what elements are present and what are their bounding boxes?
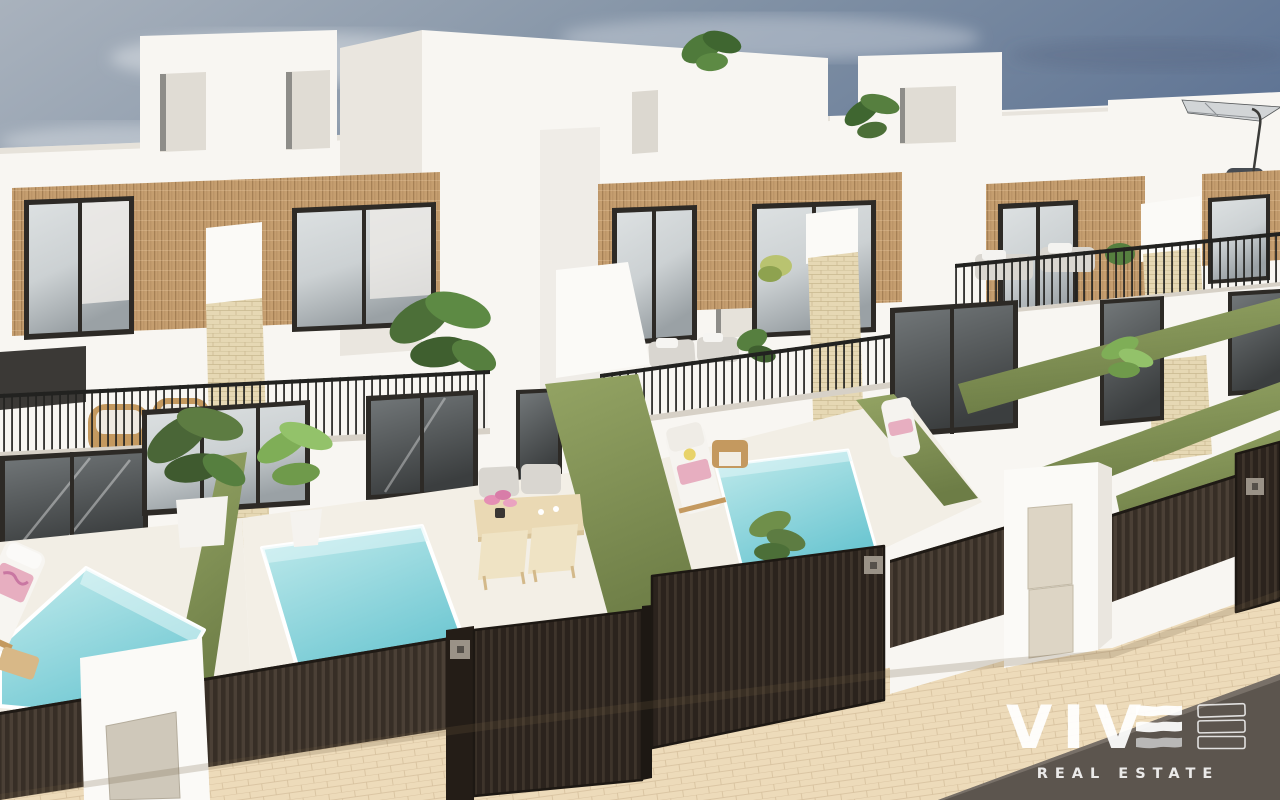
pillar-white-cap (206, 222, 262, 311)
roof-door-recess (632, 90, 658, 154)
sofa-pillow (656, 338, 678, 348)
roof-door-recess (286, 70, 330, 150)
gate-emblem (1246, 478, 1264, 495)
pillar-side (1098, 462, 1112, 650)
brand-e-glyph-icon (1136, 706, 1182, 749)
villa-render: VIV REAL ESTATE (0, 0, 1280, 800)
white-planter (290, 509, 322, 547)
table-opening (719, 452, 741, 466)
pedestrian-gate (1236, 442, 1280, 612)
window-curtain (370, 207, 431, 299)
mailbox-panel (1028, 504, 1072, 589)
roof-door-recess (900, 86, 956, 144)
door-mullion (420, 393, 424, 496)
mailbox-pillar (1004, 462, 1112, 668)
brand-tagline: REAL ESTATE (1037, 766, 1220, 782)
mailbox-panel (1029, 585, 1073, 658)
gate-emblem (450, 640, 470, 659)
window-mullion (78, 202, 82, 334)
door-reveal-shadow (286, 72, 292, 149)
white-planter (176, 496, 228, 548)
table-cup (538, 509, 544, 515)
yellow-shrub (758, 266, 782, 282)
door-mullion (70, 452, 74, 548)
sofa-pillow (1048, 243, 1072, 253)
dining-chair-wood (528, 524, 578, 574)
meter-panel (106, 712, 180, 800)
door-reveal-shadow (160, 74, 166, 151)
brand-letters: VIV (1006, 693, 1151, 763)
sofa-pillow (982, 250, 1006, 260)
dining-chair-wood (478, 530, 528, 580)
flower-vase (495, 508, 505, 518)
upper-window (24, 196, 134, 340)
wooden-side-table (712, 440, 748, 468)
door-reveal-shadow (900, 88, 905, 143)
window-mullion (362, 208, 366, 326)
ground-floor-doors (366, 390, 478, 500)
window-mullion (652, 207, 656, 343)
dining-chair-cushioned (521, 464, 561, 494)
driveway-gate-left (474, 610, 642, 796)
cloud-dark-streak (1010, 39, 1280, 71)
roof-box-left (140, 30, 337, 198)
roof-door-recess (160, 72, 206, 152)
gate-emblem (864, 556, 883, 574)
render-image: VIV REAL ESTATE (0, 0, 1280, 800)
gate-post (642, 605, 652, 780)
window-curtain (82, 201, 129, 304)
window-mullion (950, 306, 954, 434)
table-cup (553, 506, 559, 512)
sofa-pillow (703, 333, 723, 342)
